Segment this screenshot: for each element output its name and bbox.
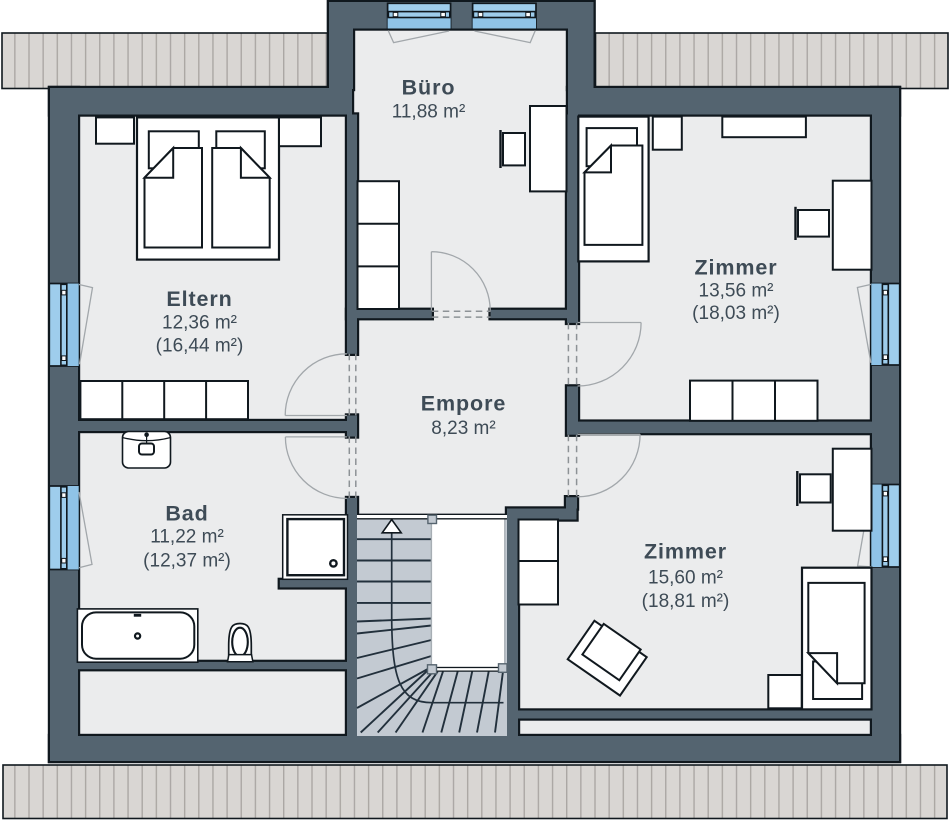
svg-text:Zimmer: Zimmer: [694, 256, 777, 280]
svg-text:13,56 m²: 13,56 m²: [699, 281, 774, 302]
svg-text:(18,81 m²): (18,81 m²): [642, 591, 730, 612]
svg-text:12,36 m²: 12,36 m²: [162, 313, 237, 334]
svg-text:(18,03 m²): (18,03 m²): [692, 303, 780, 324]
svg-text:11,88 m²: 11,88 m²: [392, 102, 466, 123]
svg-text:Bad: Bad: [165, 502, 208, 526]
svg-text:Zimmer: Zimmer: [644, 540, 727, 564]
svg-text:8,23 m²: 8,23 m²: [431, 418, 495, 439]
svg-text:Eltern: Eltern: [166, 287, 232, 311]
svg-text:Büro: Büro: [402, 76, 456, 100]
svg-text:(12,37 m²): (12,37 m²): [143, 551, 231, 572]
svg-text:15,60 m²: 15,60 m²: [648, 568, 723, 589]
svg-text:Empore: Empore: [421, 392, 506, 416]
svg-text:(16,44 m²): (16,44 m²): [156, 336, 244, 357]
svg-text:11,22 m²: 11,22 m²: [150, 527, 224, 548]
